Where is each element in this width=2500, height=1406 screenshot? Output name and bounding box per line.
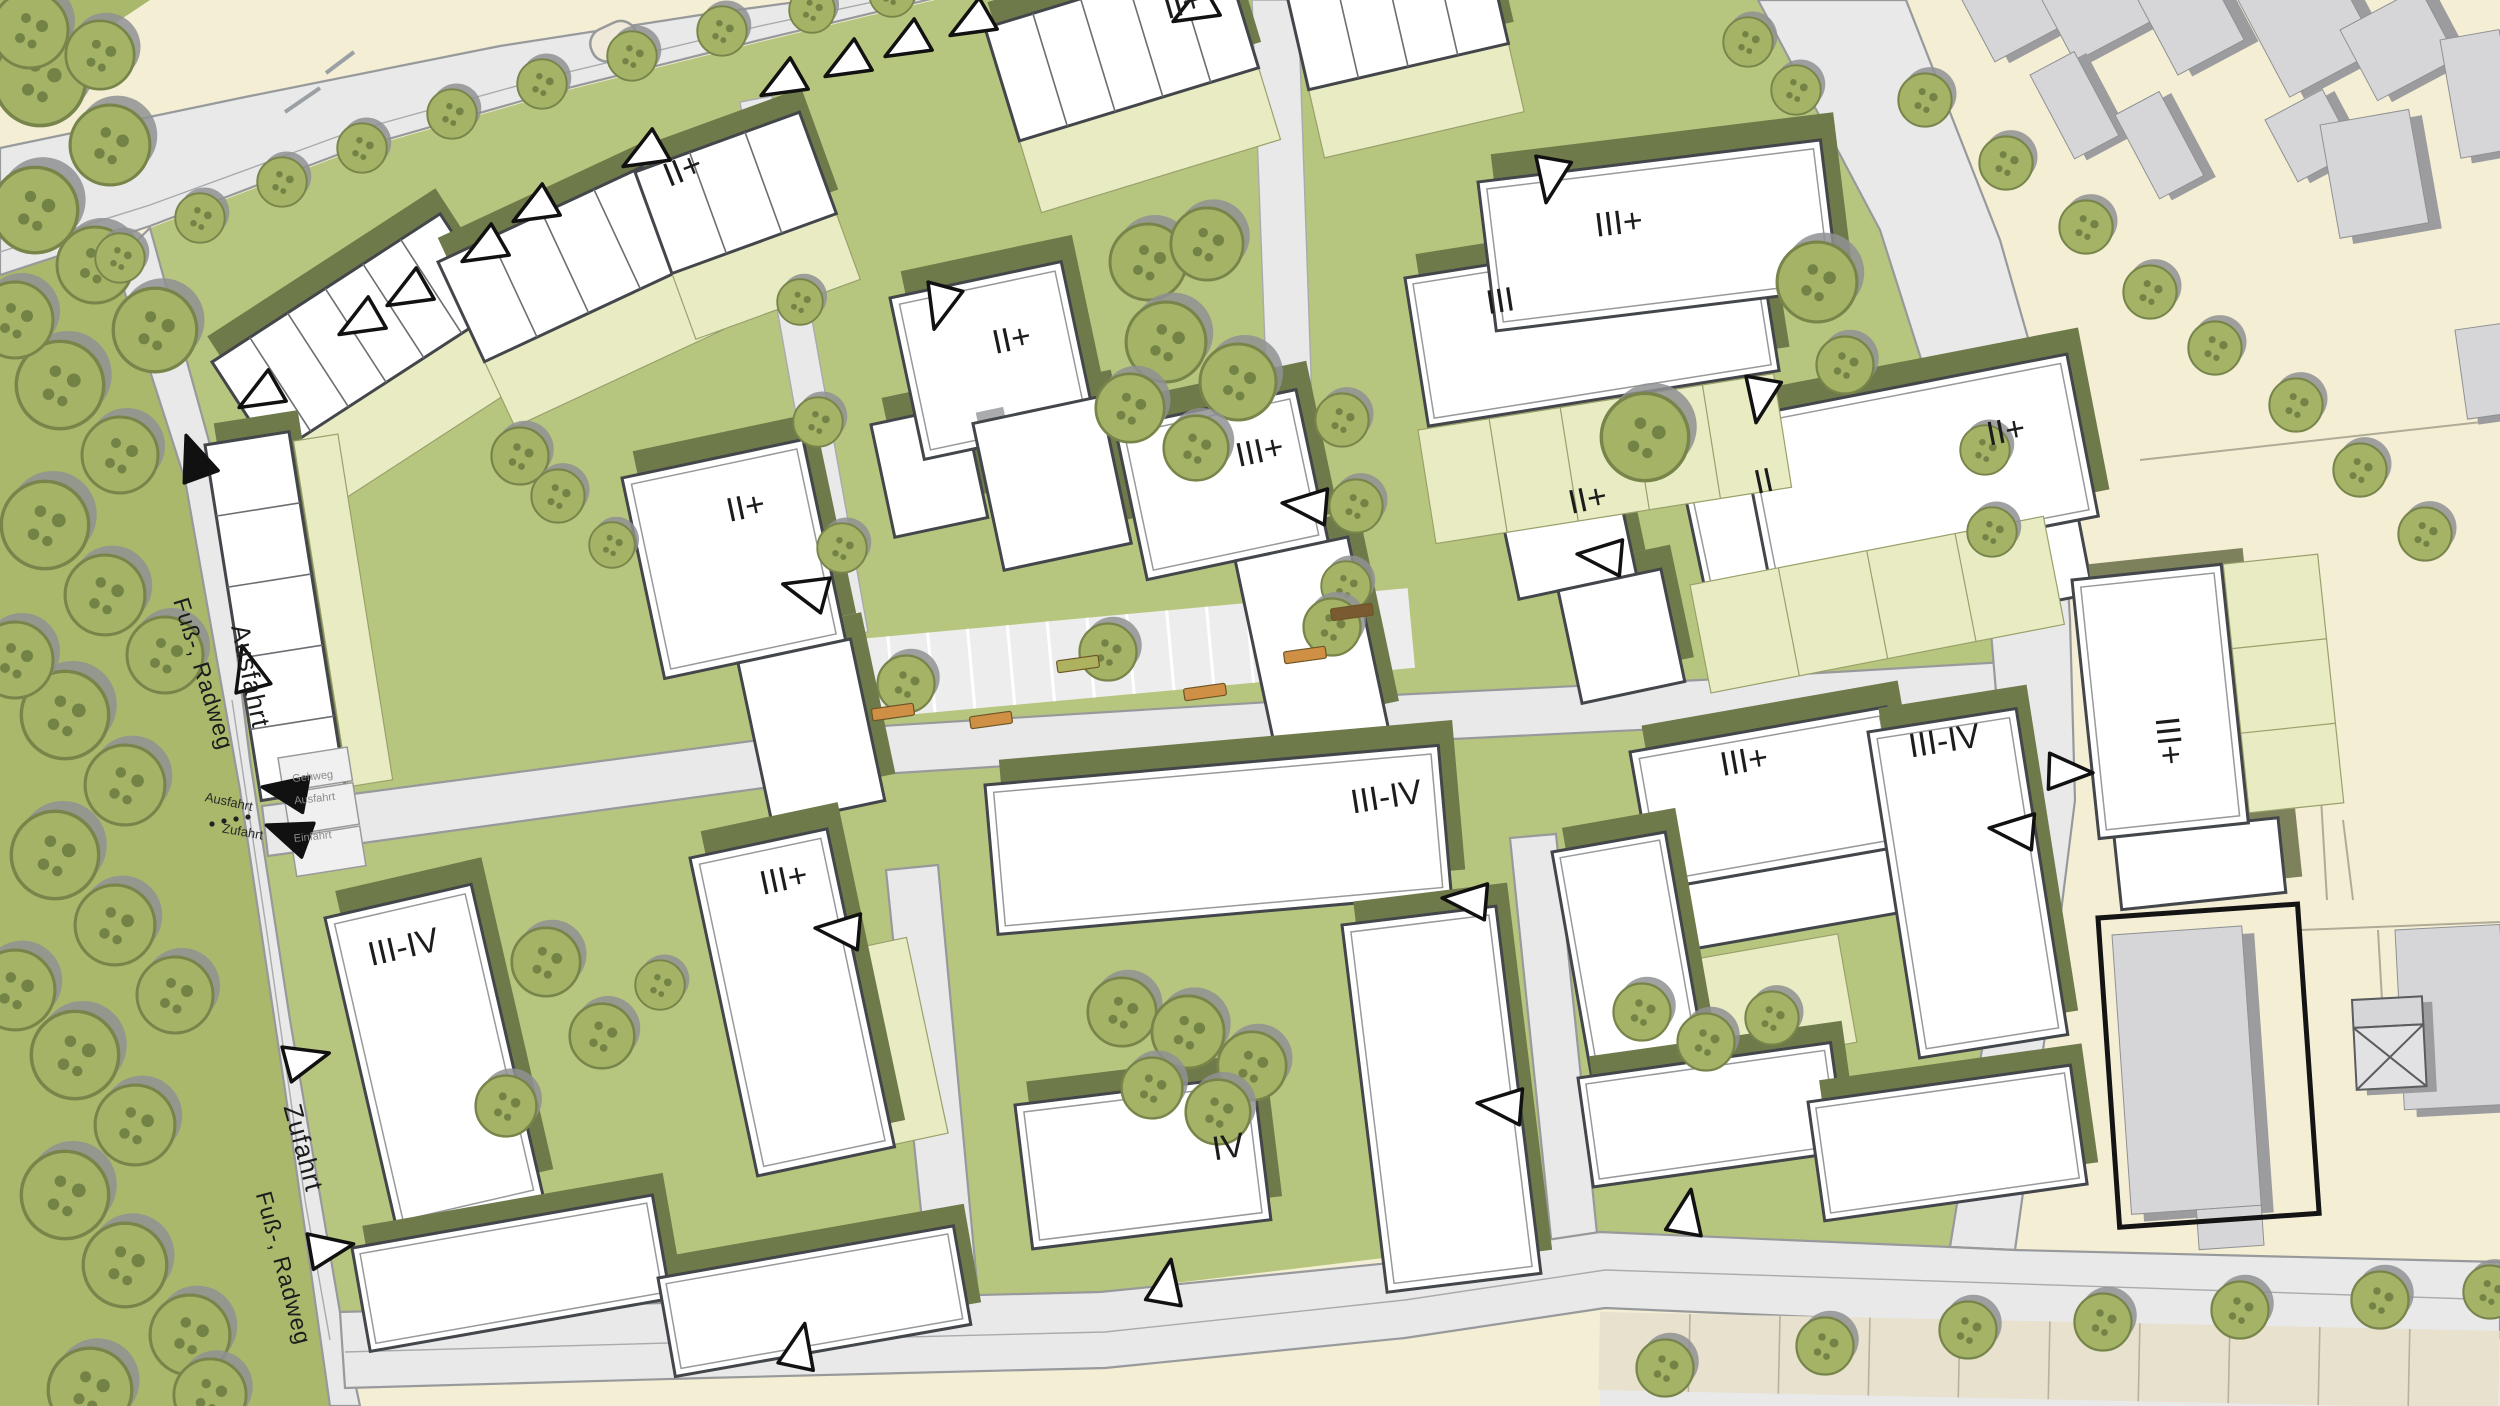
building-floor-label: II+ bbox=[989, 317, 1035, 362]
trafo-station bbox=[2352, 996, 2437, 1096]
building-floor-label: III+ bbox=[1592, 201, 1644, 245]
building-floor-label: III bbox=[1483, 280, 1517, 322]
site-plan-canvas: II+ II+ II+ II+ III+ II+ II II+ III+ III… bbox=[0, 0, 2500, 1406]
building-floor-label: II+ bbox=[1983, 409, 2028, 454]
building-floor-label: IV bbox=[1209, 1126, 1247, 1169]
site-plan: II+ II+ II+ II+ III+ II+ II II+ III+ III… bbox=[0, 0, 2500, 1406]
building-floor-label: III+ bbox=[2148, 715, 2191, 767]
building-floor-label: II+ bbox=[1565, 477, 1611, 522]
building-floor-label: II+ bbox=[723, 485, 769, 530]
